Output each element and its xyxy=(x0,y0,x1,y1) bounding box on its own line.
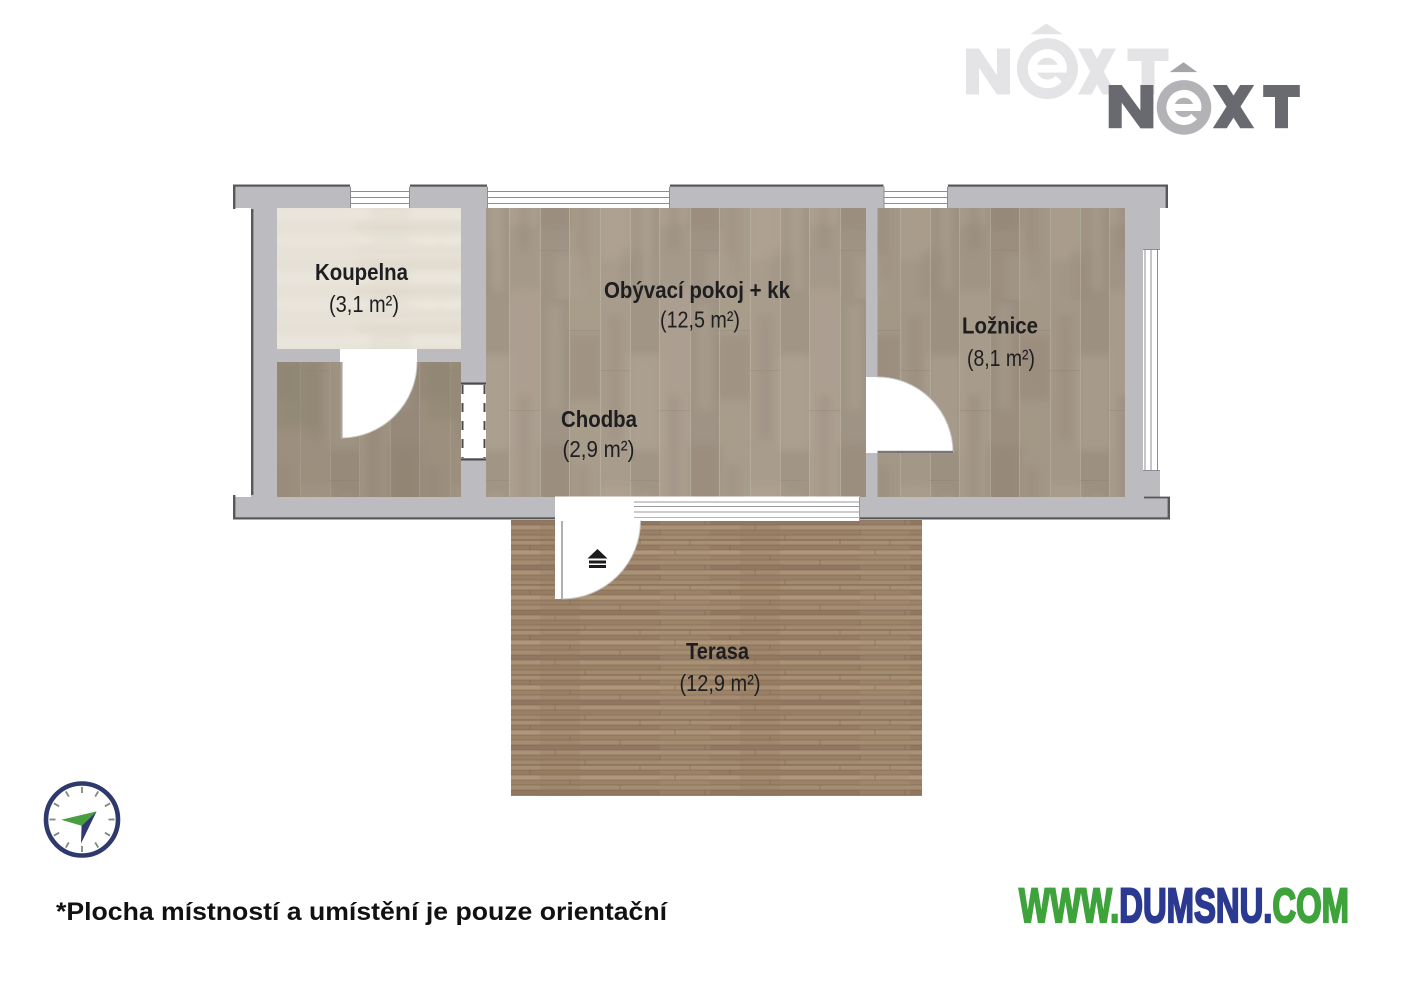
svg-text:Terasa: Terasa xyxy=(686,638,749,664)
svg-text:Koupelna: Koupelna xyxy=(315,259,408,285)
svg-text:(12,5 m²): (12,5 m²) xyxy=(660,307,740,333)
svg-text:(8,1 m²): (8,1 m²) xyxy=(967,345,1035,371)
svg-text:(12,9 m²): (12,9 m²) xyxy=(680,670,761,696)
svg-text:WWW.DUMSNU.COM: WWW.DUMSNU.COM xyxy=(1019,880,1349,933)
svg-text:Chodba: Chodba xyxy=(561,406,637,432)
svg-text:Obývací pokoj + kk: Obývací pokoj + kk xyxy=(604,277,790,303)
svg-text:Ložnice: Ložnice xyxy=(962,313,1038,339)
svg-text:(3,1 m²): (3,1 m²) xyxy=(329,291,399,317)
svg-text:*Plocha místností a umístění j: *Plocha místností a umístění je pouze or… xyxy=(56,898,668,926)
svg-text:(2,9 m²): (2,9 m²) xyxy=(563,436,635,462)
